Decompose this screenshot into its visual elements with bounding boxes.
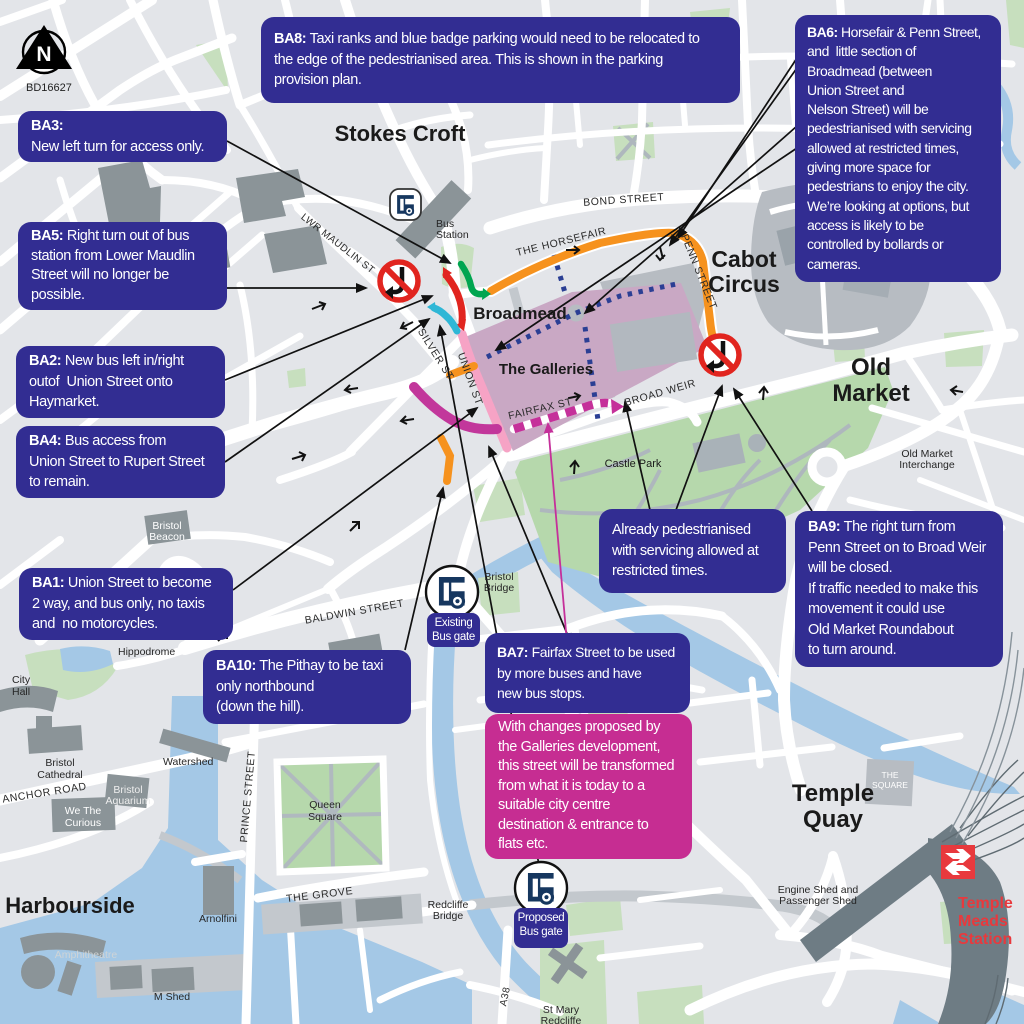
svg-text:N: N <box>36 43 51 66</box>
svg-text:Cathedral: Cathedral <box>37 769 83 781</box>
svg-text:Station: Station <box>958 931 1012 948</box>
svg-text:Broadmead: Broadmead <box>473 304 567 323</box>
svg-text:SQUARE: SQUARE <box>872 780 908 790</box>
svg-text:Temple: Temple <box>792 780 874 807</box>
svg-text:Old: Old <box>851 354 891 381</box>
svg-text:Cabot: Cabot <box>711 246 777 272</box>
svg-text:Castle Park: Castle Park <box>605 458 662 470</box>
svg-text:THE: THE <box>882 770 899 780</box>
svg-text:Arnolfini: Arnolfini <box>199 913 237 925</box>
svg-text:City: City <box>12 674 31 686</box>
svg-text:Stokes Croft: Stokes Croft <box>335 121 466 146</box>
svg-text:Queen: Queen <box>309 799 341 811</box>
svg-text:Bridge: Bridge <box>433 910 464 922</box>
svg-text:Watershed: Watershed <box>163 756 214 768</box>
svg-text:Square: Square <box>308 811 342 823</box>
svg-text:Beacon: Beacon <box>149 531 185 543</box>
svg-text:Circus: Circus <box>708 271 780 297</box>
svg-text:Station: Station <box>436 229 469 241</box>
svg-text:Quay: Quay <box>803 806 864 833</box>
svg-text:Temple: Temple <box>958 895 1013 912</box>
svg-text:Passenger Shed: Passenger Shed <box>779 895 857 907</box>
svg-text:M Shed: M Shed <box>154 991 190 1003</box>
svg-text:Hippodrome: Hippodrome <box>118 646 175 658</box>
svg-text:Bristol: Bristol <box>45 757 74 769</box>
svg-text:Aquarium: Aquarium <box>106 795 151 807</box>
svg-text:Interchange: Interchange <box>899 459 955 471</box>
svg-text:Amphitheatre: Amphitheatre <box>55 949 118 961</box>
svg-text:We The: We The <box>65 805 102 817</box>
svg-text:BD16627: BD16627 <box>26 82 72 94</box>
svg-text:Harbourside: Harbourside <box>5 893 135 918</box>
svg-text:The Galleries: The Galleries <box>499 361 593 378</box>
svg-text:Meads: Meads <box>958 913 1008 930</box>
svg-text:Curious: Curious <box>65 817 101 829</box>
svg-text:Bridge: Bridge <box>484 582 515 594</box>
svg-text:Hall: Hall <box>12 686 30 698</box>
svg-text:Redcliffe: Redcliffe <box>541 1015 582 1024</box>
svg-text:Market: Market <box>832 380 909 407</box>
